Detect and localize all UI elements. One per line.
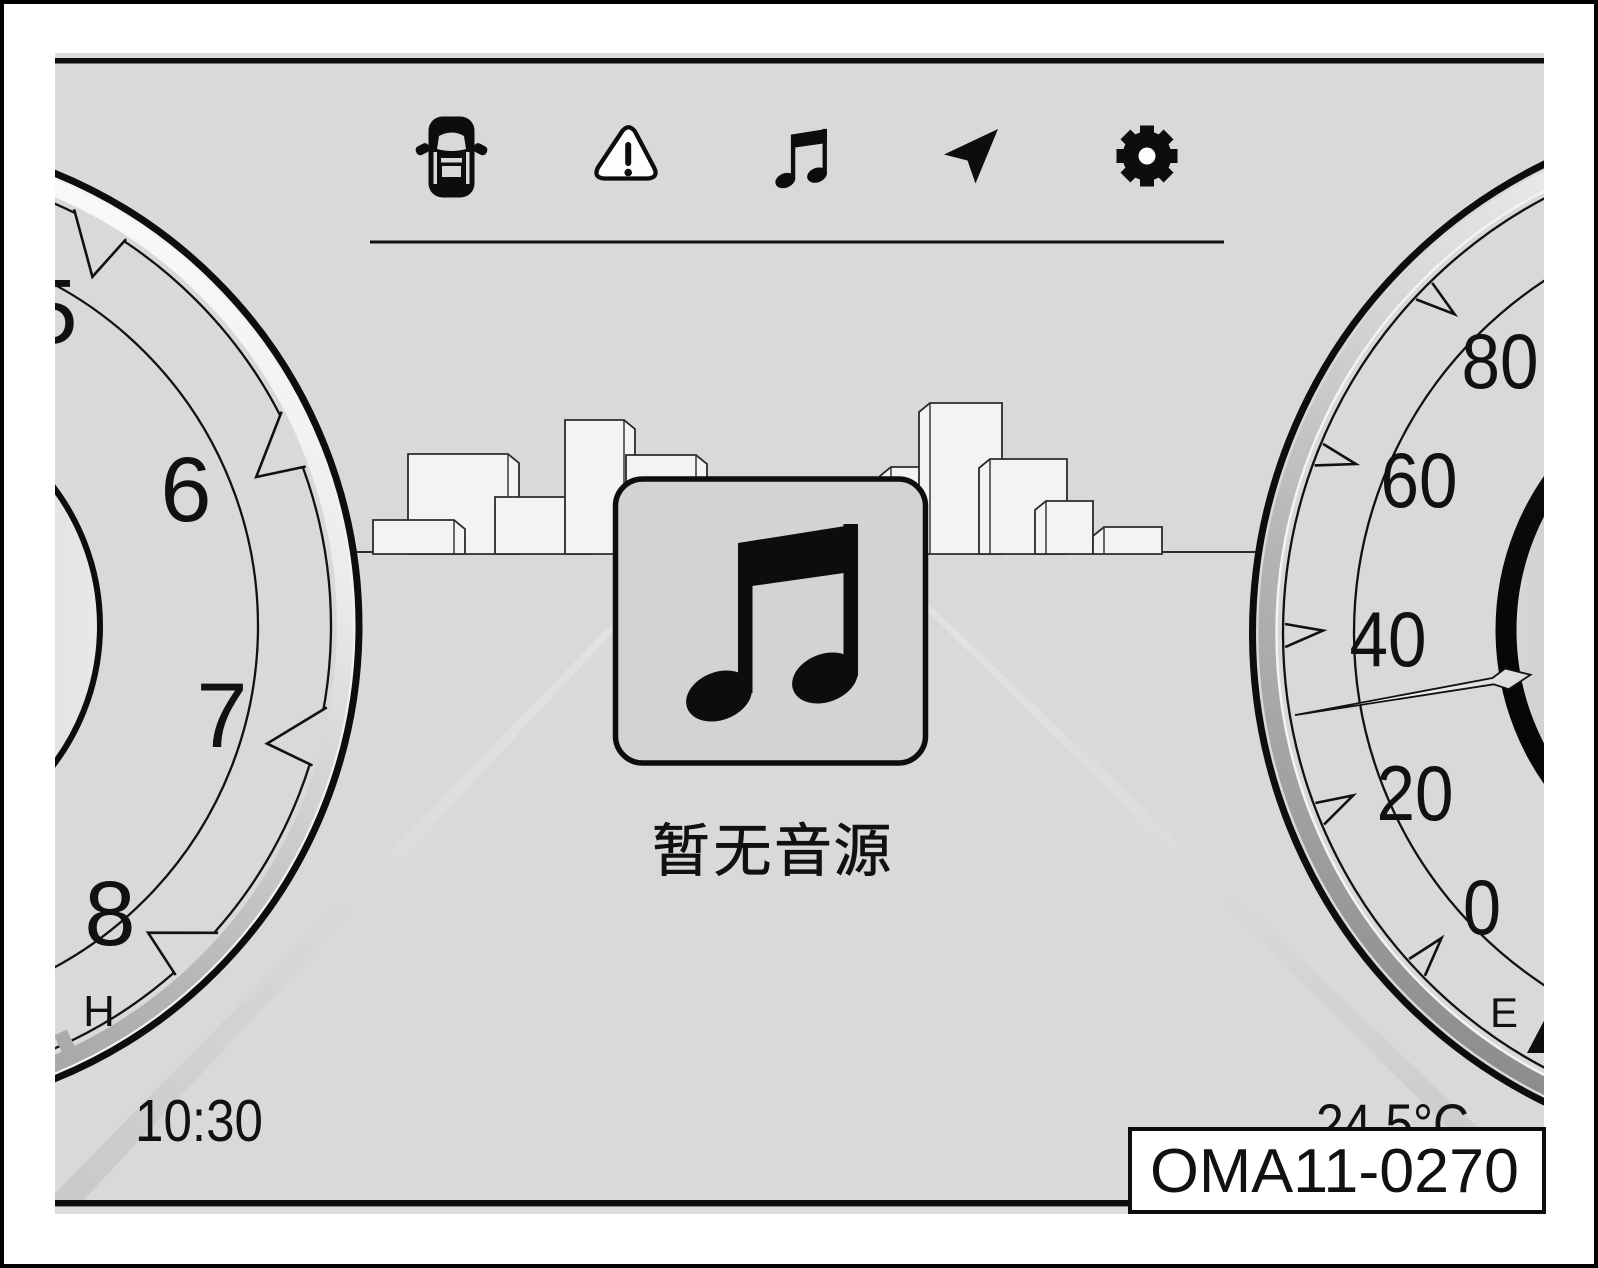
svg-text:E: E	[1490, 989, 1518, 1036]
svg-text:80: 80	[1462, 317, 1539, 405]
svg-text:20: 20	[1377, 749, 1454, 837]
svg-text:40: 40	[1350, 595, 1427, 683]
svg-text:H: H	[83, 987, 115, 1036]
svg-text:6: 6	[160, 439, 211, 541]
svg-text:7: 7	[196, 665, 247, 767]
svg-text:8: 8	[84, 863, 135, 965]
svg-text:0: 0	[1463, 863, 1501, 951]
svg-text:60: 60	[1381, 436, 1458, 524]
svg-text:OMA11-0270: OMA11-0270	[1150, 1137, 1519, 1206]
svg-text:10:30: 10:30	[135, 1088, 263, 1154]
